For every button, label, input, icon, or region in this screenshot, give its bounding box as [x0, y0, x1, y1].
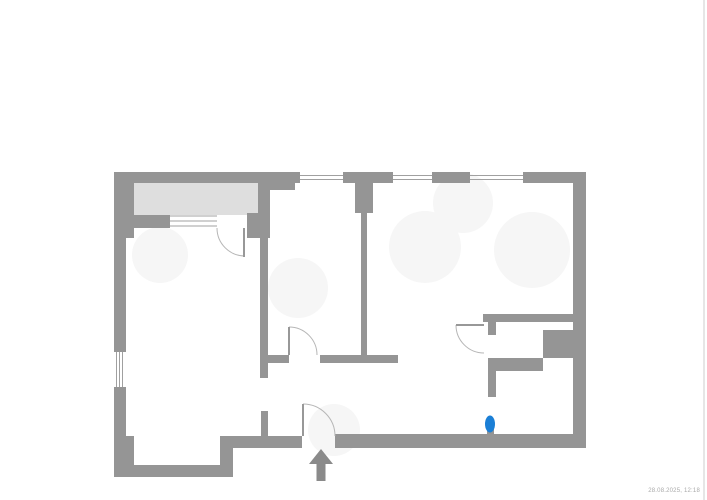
left-wall-mid: [114, 238, 126, 352]
floor-plan-canvas: [0, 0, 707, 500]
scan-timestamp: 28.08.2025, 12:18: [648, 488, 700, 494]
duct-step-horizontal: [488, 358, 543, 371]
duct-block: [543, 330, 573, 358]
scan-smudge: [494, 212, 570, 288]
top-wall-segment-3: [432, 172, 470, 183]
scan-page-edge: [703, 0, 705, 500]
bottom-wall-right: [335, 434, 585, 448]
top-wall-segment-1: [114, 172, 300, 183]
bottom-wall-mid: [220, 436, 302, 448]
duct-step-vertical: [488, 371, 496, 397]
left-wall-upper-thick: [114, 172, 134, 238]
partition-wall: [361, 213, 367, 359]
balcony-pier: [247, 213, 270, 238]
top-wall-segment-2: [343, 172, 393, 183]
scan-smudge: [132, 227, 188, 283]
entry-hall-stub: [261, 411, 268, 436]
left-wall-lower: [114, 387, 126, 436]
partition-wall-top: [355, 183, 373, 213]
hall-bottom-wall-right: [320, 355, 398, 363]
scanned-floorplan-page: 28.08.2025, 12:18: [0, 0, 707, 500]
entrance-arrow-stem: [317, 462, 326, 481]
right-wall: [573, 172, 586, 448]
balcony-bottom-wall: [126, 215, 170, 228]
balcony-area: [134, 182, 258, 215]
door-bath-swing-arc: [456, 325, 484, 353]
balcony-right-wall: [258, 181, 270, 213]
top-wall-notch: [270, 183, 295, 190]
blue-position-marker: [485, 416, 495, 433]
scan-smudge: [268, 258, 328, 318]
bath-top-wall: [483, 314, 573, 322]
door-hall-swing-arc: [289, 327, 317, 355]
hall-bottom-wall-left: [260, 355, 289, 363]
door-balcony-swing-arc: [217, 228, 245, 256]
bath-door-jamb: [488, 321, 496, 335]
bottom-wall-left: [114, 465, 233, 477]
